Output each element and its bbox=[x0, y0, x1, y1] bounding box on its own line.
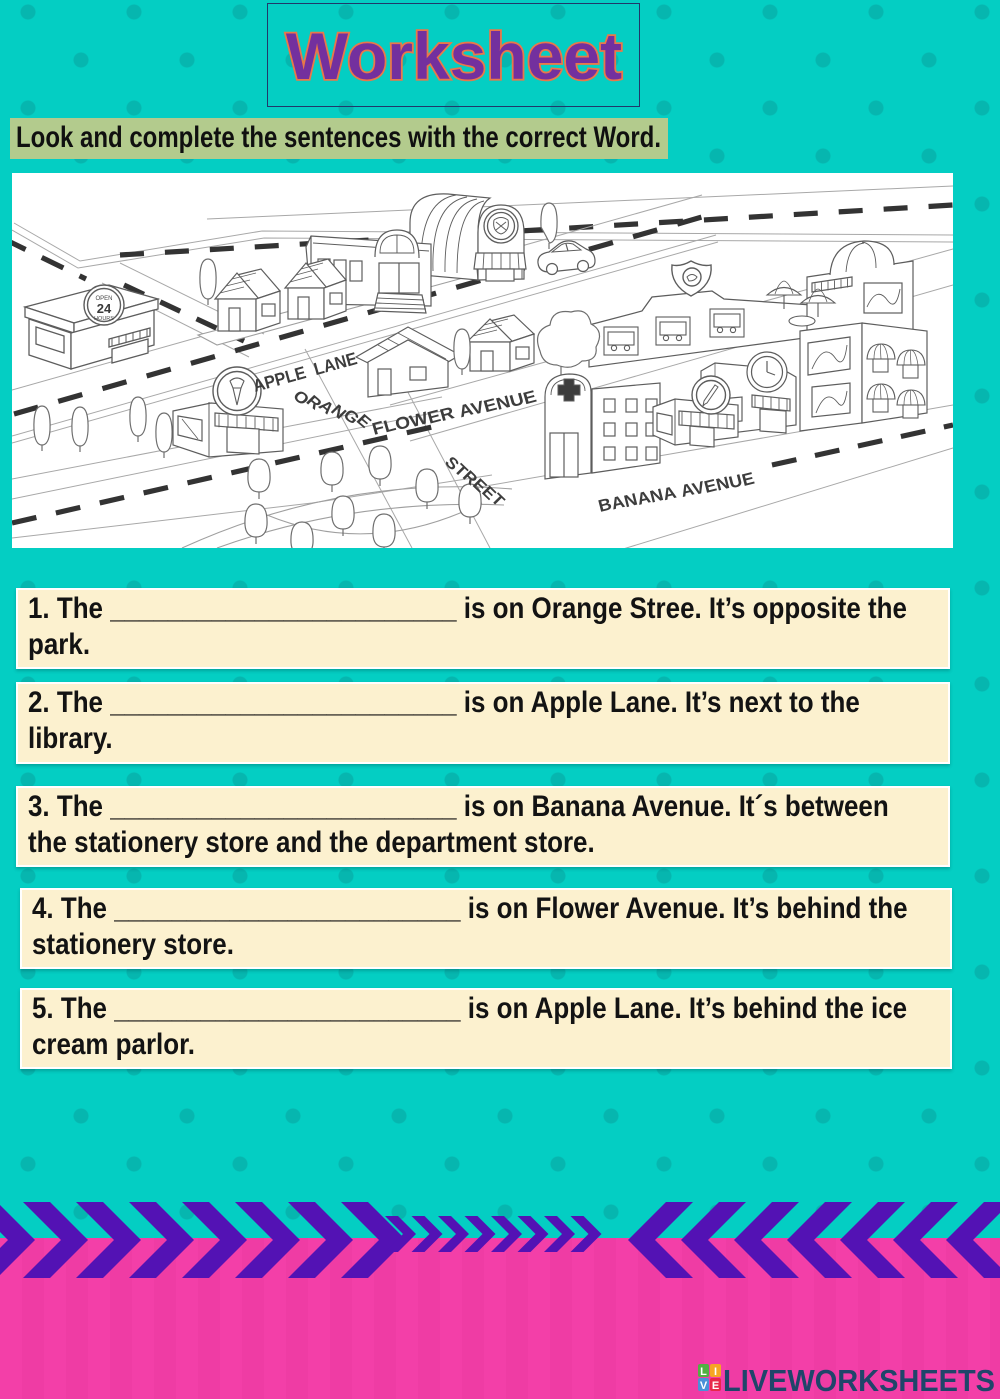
svg-text:I: I bbox=[714, 1366, 717, 1378]
svg-text:V: V bbox=[700, 1380, 708, 1392]
svg-text:HOURS: HOURS bbox=[94, 316, 114, 322]
svg-text:APPLE LANE: APPLE LANE bbox=[251, 348, 359, 396]
svg-text:ORANGE: ORANGE bbox=[287, 385, 375, 435]
svg-text:E: E bbox=[712, 1380, 719, 1392]
svg-text:L: L bbox=[700, 1366, 707, 1378]
svg-text:24: 24 bbox=[97, 301, 112, 316]
svg-text:LIVEWORKSHEETS: LIVEWORKSHEETS bbox=[723, 1363, 995, 1396]
svg-text:Worksheet: Worksheet bbox=[286, 19, 622, 93]
svg-text:BANANA AVENUE: BANANA AVENUE bbox=[596, 468, 756, 516]
